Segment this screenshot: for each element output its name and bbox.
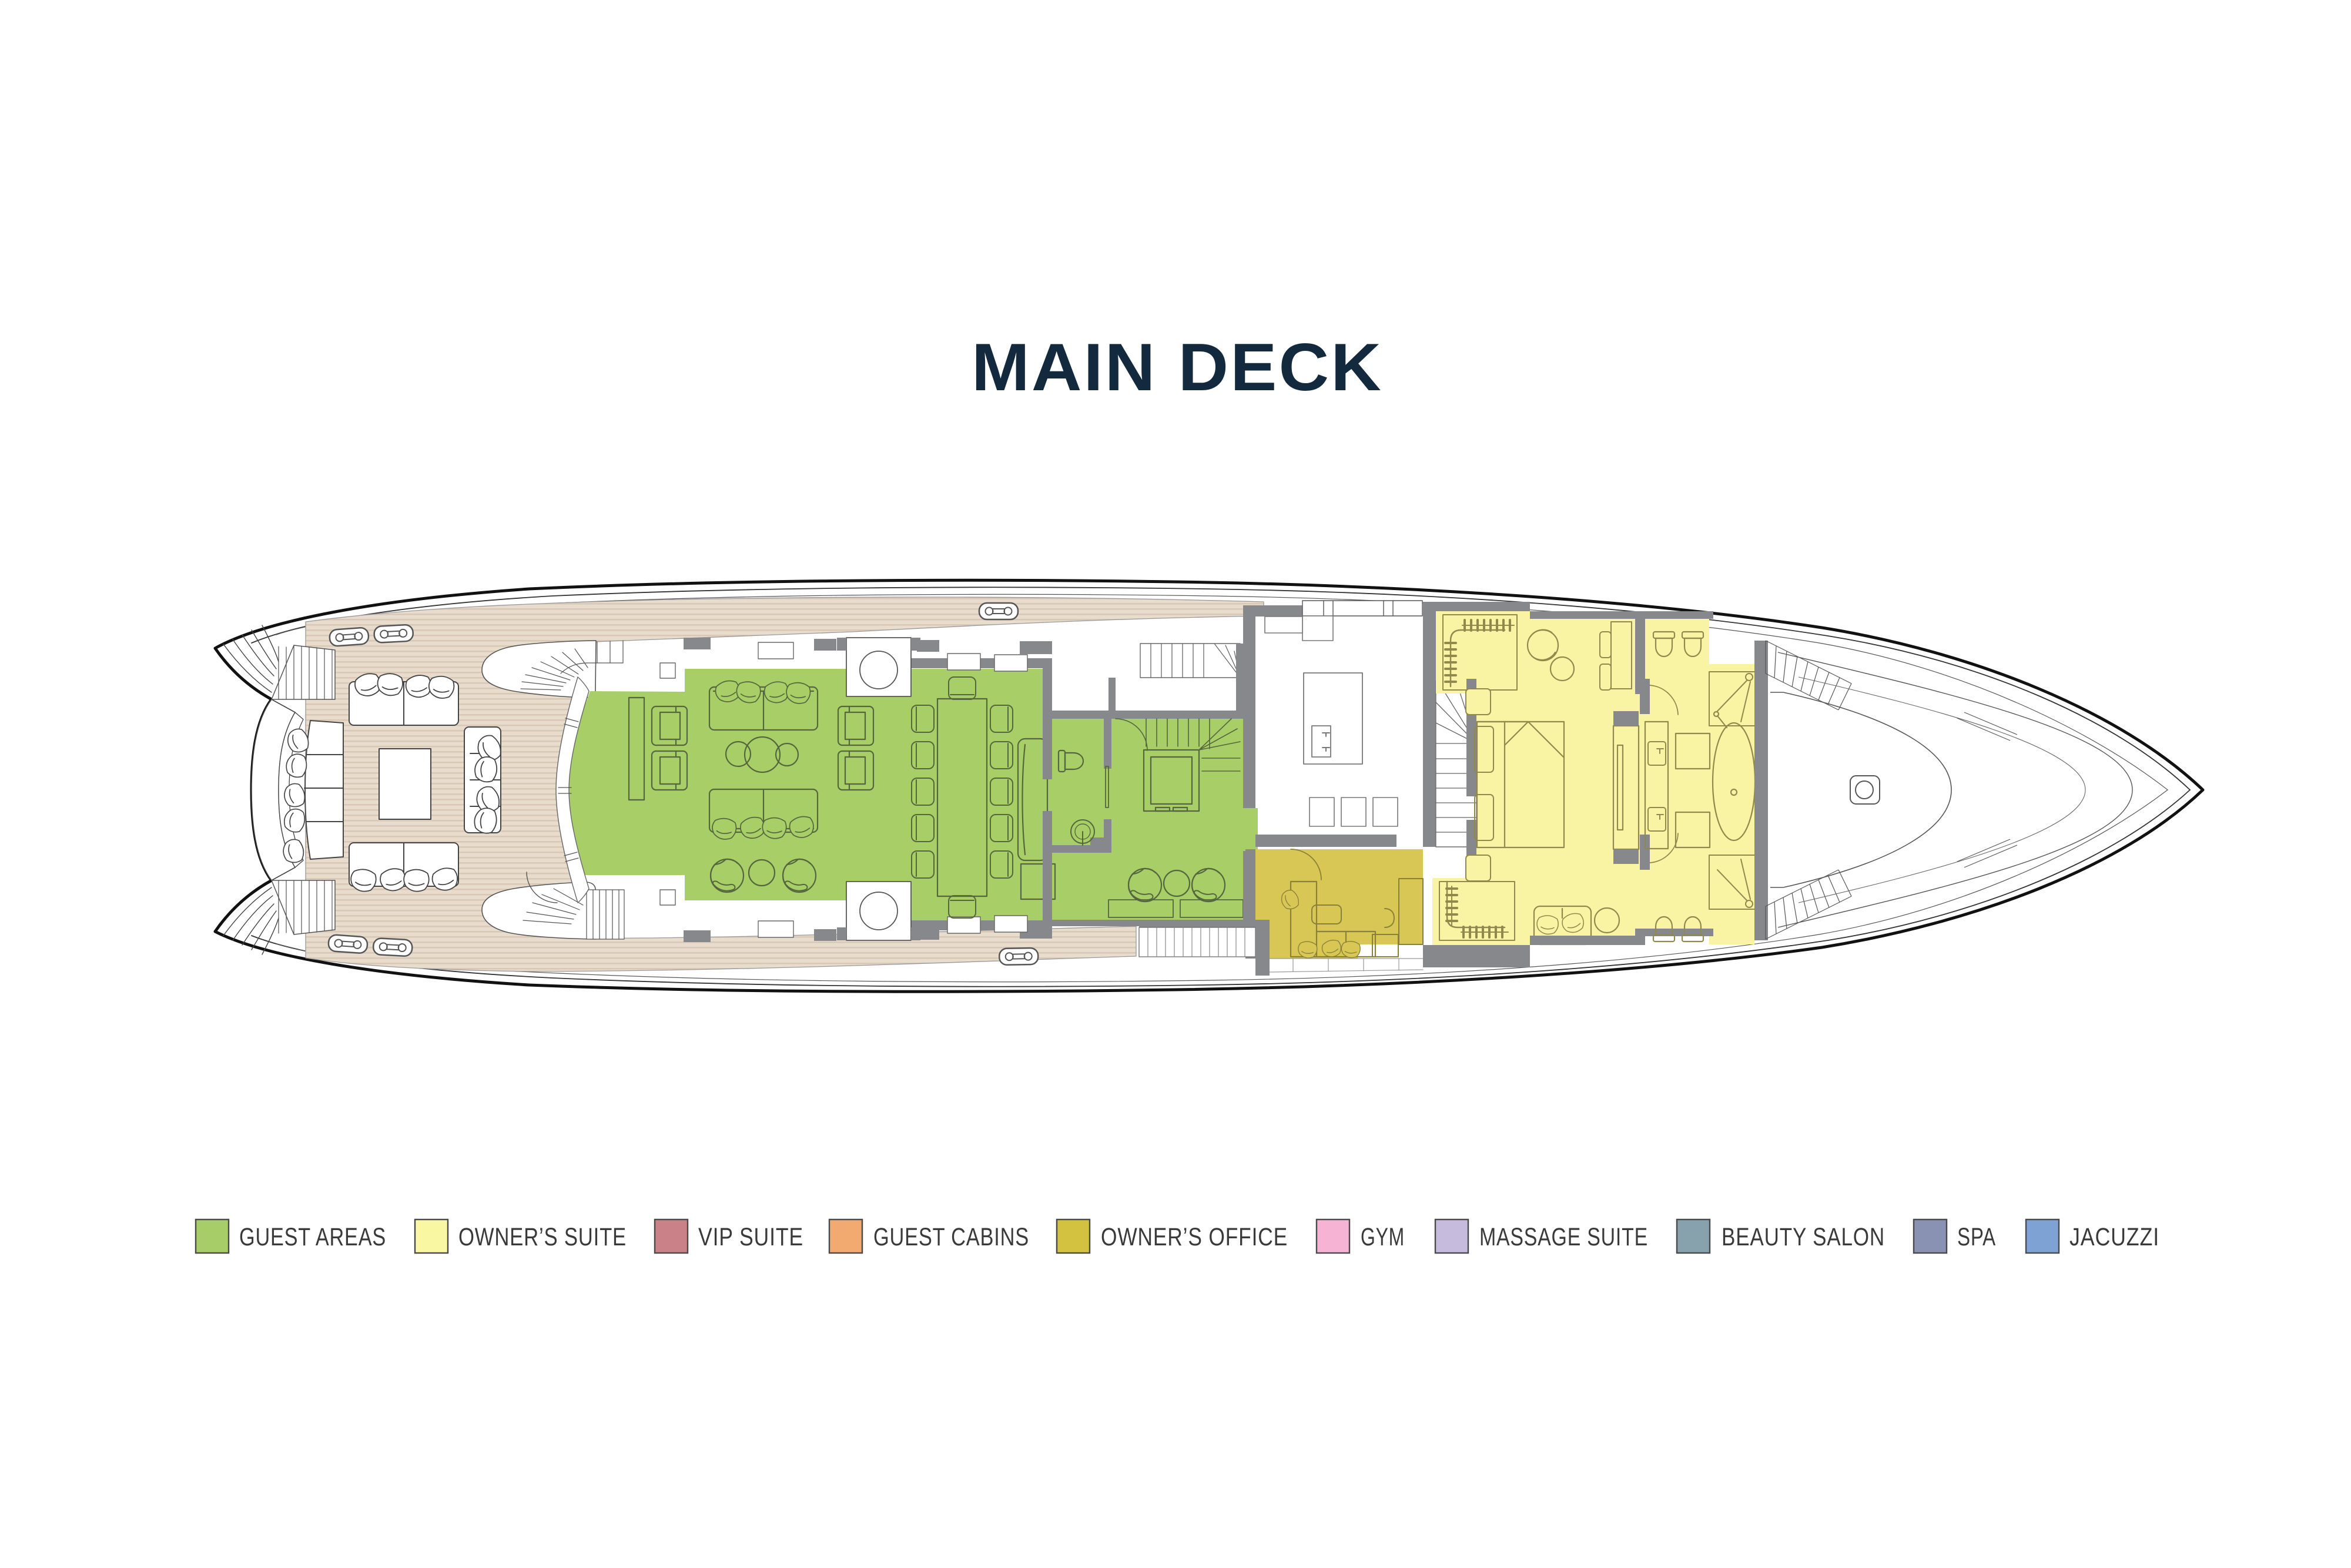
svg-text:GUEST CABINS: GUEST CABINS bbox=[873, 1223, 1029, 1251]
svg-text:JACUZZI: JACUZZI bbox=[2069, 1223, 2159, 1251]
svg-text:OWNER’S OFFICE: OWNER’S OFFICE bbox=[1101, 1223, 1288, 1251]
svg-text:BEAUTY SALON: BEAUTY SALON bbox=[1722, 1223, 1885, 1251]
svg-text:VIP SUITE: VIP SUITE bbox=[698, 1223, 803, 1251]
svg-text:GUEST AREAS: GUEST AREAS bbox=[239, 1223, 386, 1251]
svg-text:GYM: GYM bbox=[1361, 1223, 1405, 1251]
svg-text:OWNER’S SUITE: OWNER’S SUITE bbox=[458, 1223, 627, 1251]
svg-text:MASSAGE SUITE: MASSAGE SUITE bbox=[1479, 1223, 1648, 1251]
svg-text:SPA: SPA bbox=[1957, 1223, 1996, 1251]
svg-text:MAIN DECK: MAIN DECK bbox=[972, 330, 1383, 405]
